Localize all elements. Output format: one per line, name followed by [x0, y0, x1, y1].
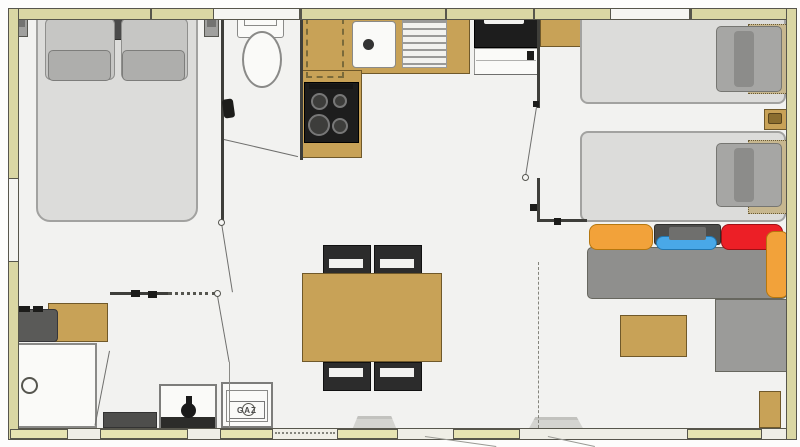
lounge-wall-latch-2 — [554, 218, 561, 225]
toilet-bowl — [242, 31, 282, 88]
wall-joint-3 — [445, 8, 447, 20]
overhead-cupboard-dashed — [306, 18, 344, 78]
bathroom-wall-latch-1 — [131, 290, 140, 297]
window-bottom-4 — [337, 429, 398, 439]
washbasin-unit-base — [161, 417, 215, 428]
dining-chair-bottom-left-seat — [329, 368, 363, 377]
hob-burner-2 — [333, 94, 347, 108]
lounge-wall-latch-1 — [530, 204, 537, 211]
twin-bed-2-pillow-fold — [734, 148, 754, 202]
outer-wall-right — [786, 8, 797, 440]
pillow-small-left — [48, 50, 111, 81]
window-bottom-3 — [220, 429, 273, 439]
vanity-tap-2 — [33, 306, 43, 312]
window-top-2 — [610, 8, 690, 20]
wall-master-bedroom — [221, 13, 224, 223]
cushion-orange-left — [589, 224, 653, 250]
wall-joint-5 — [690, 8, 692, 20]
washbasin-bowl — [181, 403, 196, 418]
sliding-door-dotted-line — [275, 432, 335, 434]
sofa-base — [587, 247, 787, 299]
pillow-small-right — [122, 50, 185, 81]
coffee-table — [620, 315, 687, 357]
window-top-1 — [213, 8, 300, 20]
dining-chair-top-right-seat — [380, 259, 414, 268]
shower-drain — [21, 377, 38, 394]
window-left — [8, 178, 19, 262]
twin-bed-1-pillow-fold — [734, 31, 754, 87]
privacy-screen-line — [229, 362, 230, 428]
door-hinge-3 — [522, 174, 529, 181]
wall-twin-bedroom-lower — [537, 178, 540, 222]
bath-step-block — [103, 412, 157, 428]
hob-burner-1 — [311, 93, 328, 110]
door-hinge-2 — [214, 290, 221, 297]
sink-drainer — [402, 20, 447, 68]
wall-twin-bedroom-upper — [537, 13, 540, 108]
twin-bedroom-door-handle — [533, 101, 539, 107]
wall-twin-bedroom-horizontal — [537, 219, 587, 222]
washbasin-tap — [186, 396, 192, 405]
corner-cabinet — [759, 391, 781, 428]
hob-burner-3 — [308, 114, 330, 136]
partition-dashed-line — [538, 262, 539, 428]
window-bottom-1 — [10, 429, 68, 439]
nightstand-handle — [768, 113, 782, 124]
hob-burner-4 — [332, 118, 348, 134]
dining-chair-top-left-seat — [329, 259, 363, 268]
window-bottom-6 — [687, 429, 762, 439]
sofa-chaise — [715, 299, 788, 372]
mobile-home-floor-plan: GAZ — [0, 0, 800, 447]
wall-joint-1 — [150, 8, 152, 20]
window-bottom-2 — [100, 429, 188, 439]
sink-drain — [363, 39, 374, 50]
window-bottom-5 — [453, 429, 520, 439]
wall-kitchen — [300, 13, 303, 160]
fridge-shelf-line — [476, 60, 536, 61]
wall-joint-4 — [533, 8, 535, 20]
fridge-open-door-line — [474, 74, 538, 75]
bathroom-wall-latch-2 — [148, 291, 157, 298]
wall-bathroom-dotted — [168, 292, 216, 295]
gas-bottle-ring — [242, 403, 255, 416]
hob-knob-strip — [309, 84, 353, 89]
cushion-dark-inner — [669, 227, 706, 240]
dining-table — [302, 273, 442, 362]
wall-bathroom-top — [110, 292, 170, 295]
kitchen-sink — [352, 21, 396, 68]
wall-joint-2 — [300, 8, 302, 20]
fridge-latch — [527, 51, 534, 60]
door-hinge-1 — [218, 219, 225, 226]
dining-chair-bottom-right-seat — [380, 368, 414, 377]
